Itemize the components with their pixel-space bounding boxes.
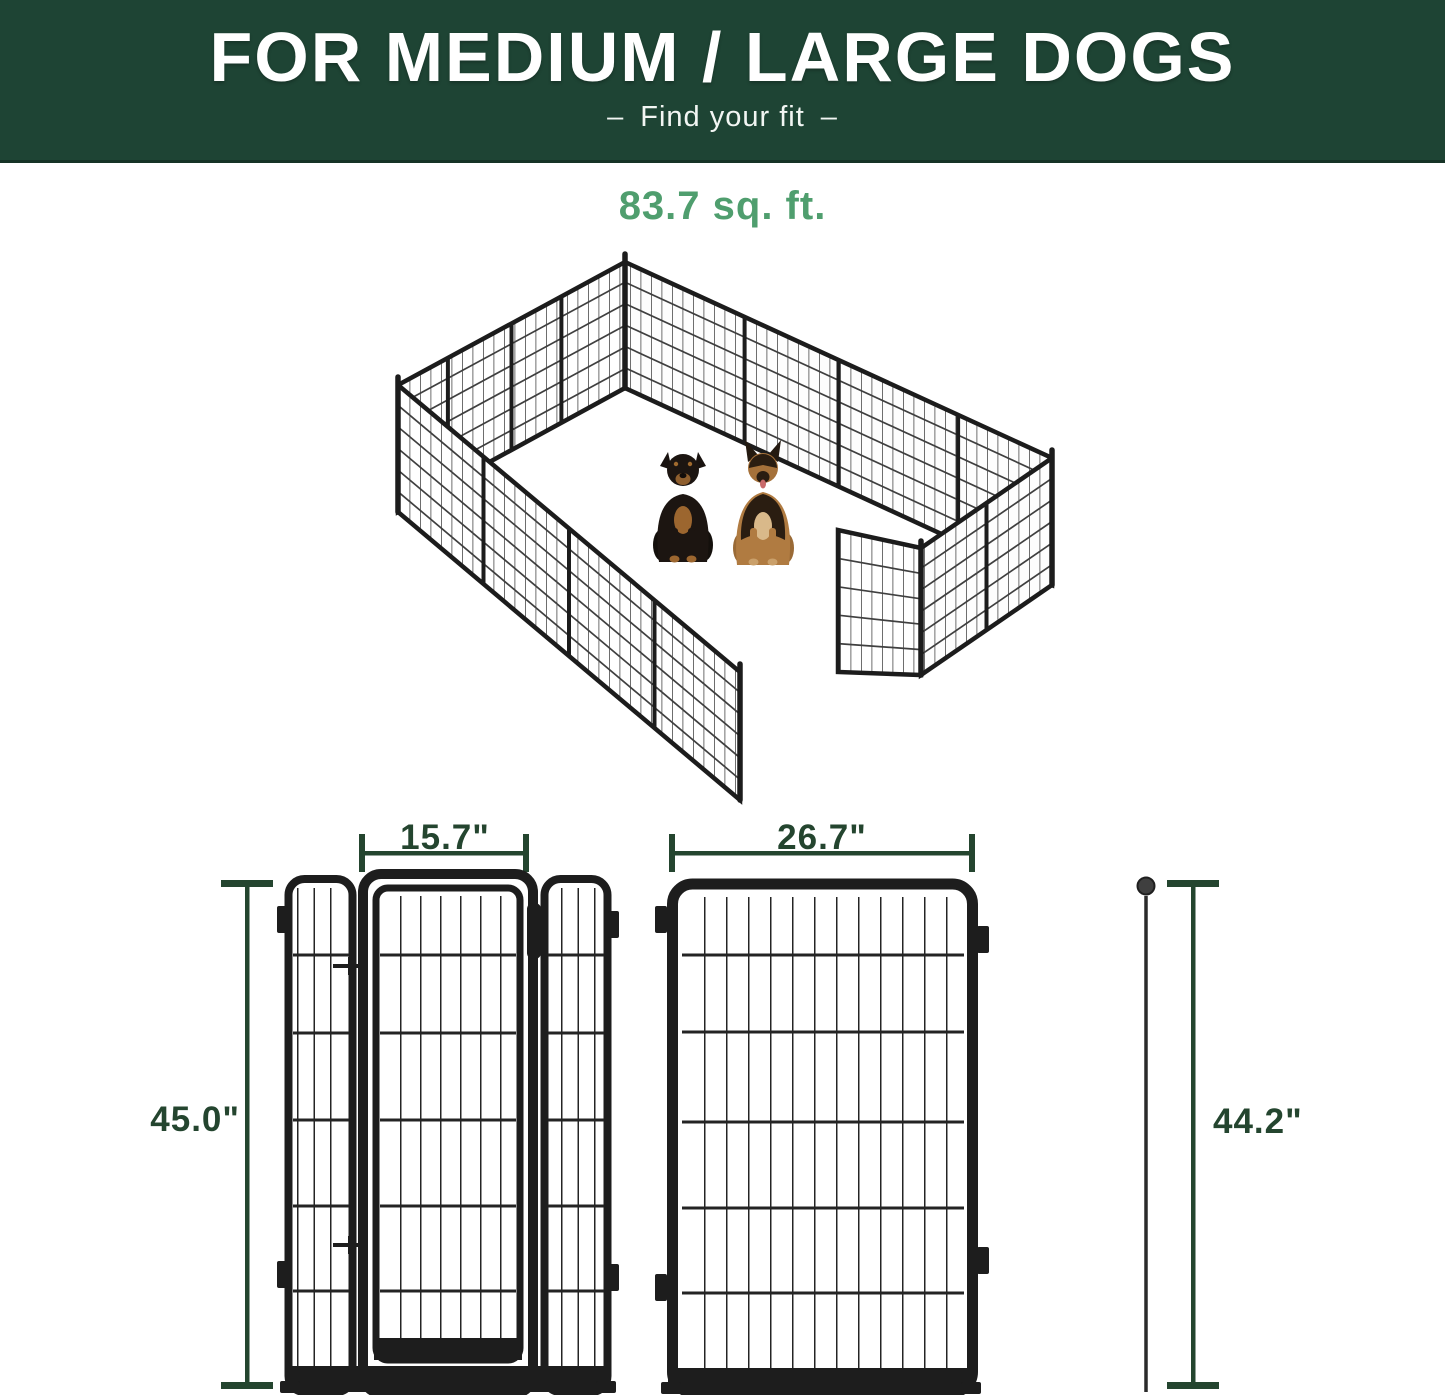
- rottweiler-dog: [653, 452, 713, 563]
- panel-width-dimension: 26.7": [669, 818, 975, 872]
- base-bar-left-assembly: [280, 1366, 616, 1393]
- gate-width-label: 15.7": [400, 818, 490, 857]
- dash-right: –: [821, 101, 838, 133]
- left-height-dimension: 45.0": [150, 880, 273, 1389]
- dimension-diagrams: 15.7" 45.0": [140, 812, 1320, 1395]
- stake-height-dimension: 44.2": [1167, 880, 1303, 1389]
- area-label: 83.7 sq. ft.: [0, 184, 1445, 229]
- stake-height-label: 44.2": [1213, 1102, 1303, 1141]
- panel-width-label: 26.7": [777, 818, 867, 857]
- ground-stake: [1138, 878, 1155, 1393]
- gate-latch: [527, 903, 541, 959]
- gate-panel: [363, 874, 541, 1393]
- base-bar-wide-panel: [661, 1368, 981, 1394]
- gate-panel-assembly: [277, 874, 619, 1393]
- product-infographic: FOR MEDIUM / LARGE DOGS –Find your fit– …: [0, 0, 1445, 1395]
- left-height-label: 45.0": [150, 1100, 240, 1139]
- gate-width-dimension: 15.7": [359, 818, 529, 872]
- wide-panel: [655, 884, 989, 1394]
- header-banner: FOR MEDIUM / LARGE DOGS –Find your fit–: [0, 0, 1445, 163]
- dog-playpen-illustration: [330, 250, 1120, 820]
- dash-left: –: [607, 101, 624, 133]
- gate-door-open: [838, 530, 921, 675]
- header-title: FOR MEDIUM / LARGE DOGS: [0, 0, 1445, 92]
- front-left-wall: [398, 385, 740, 800]
- header-subtitle-text: Find your fit: [640, 101, 805, 133]
- header-subtitle: –Find your fit–: [0, 101, 1445, 134]
